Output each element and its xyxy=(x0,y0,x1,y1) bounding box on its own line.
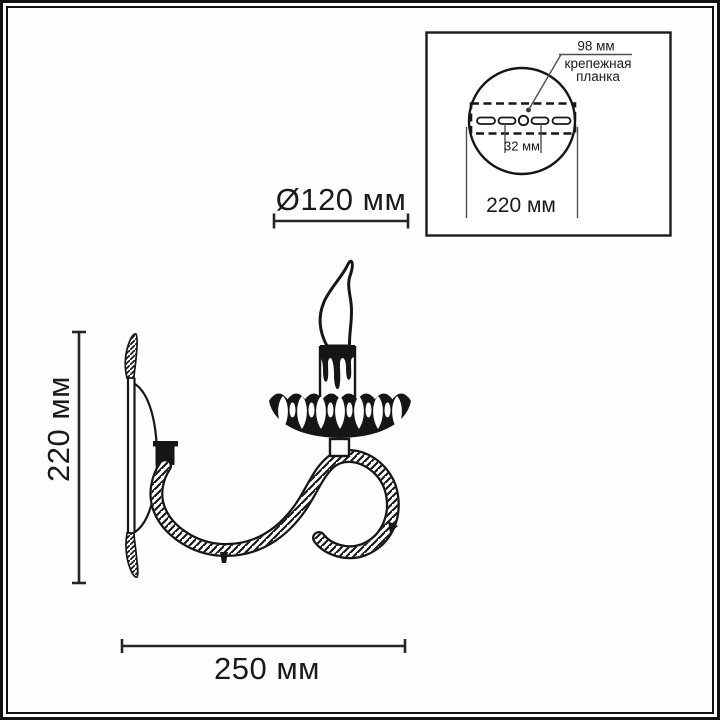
slot-spacing-label: 32 мм xyxy=(504,139,540,154)
depth-dimension-label: 250 мм xyxy=(214,651,320,687)
rope-twist-texture xyxy=(156,456,392,552)
plate-top-cap xyxy=(125,334,137,378)
plate-bottom-cap xyxy=(126,533,138,577)
wall-plate xyxy=(125,334,157,577)
plate-diameter-label: 220 мм xyxy=(486,194,556,218)
rope-arm xyxy=(156,456,398,563)
candle-stem xyxy=(330,439,349,456)
bracket-caption-line2: планка xyxy=(565,70,632,83)
bracket-caption: крепежная планка xyxy=(565,57,632,83)
wax-drips xyxy=(320,345,355,389)
arm-bottom-peg xyxy=(220,552,228,563)
sconce-side-view xyxy=(125,261,410,577)
height-dimension-label: 220 мм xyxy=(41,376,77,482)
flame-bulb xyxy=(320,261,352,346)
candle-cup xyxy=(270,395,410,438)
candle xyxy=(320,261,355,397)
bracket-width-label: 98 мм xyxy=(577,39,614,54)
shade-diameter-label: Ø120 мм xyxy=(276,182,407,218)
technical-drawing xyxy=(0,0,720,720)
product-dimension-sheet: Ø120 мм 220 мм 250 мм 98 мм крепежная пл… xyxy=(0,0,720,720)
